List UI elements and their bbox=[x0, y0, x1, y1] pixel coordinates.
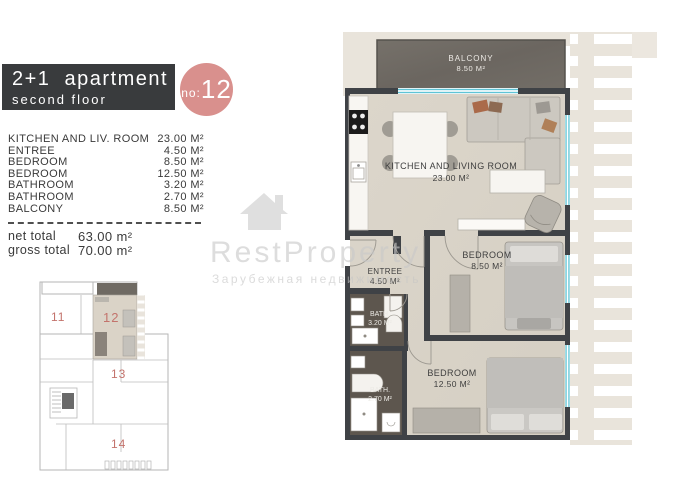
living-room-label: KITCHEN AND LIVING ROOM bbox=[385, 161, 517, 171]
table-separator bbox=[8, 222, 201, 224]
kitchen bbox=[349, 96, 368, 230]
apartment-title: 2+1 apartment bbox=[12, 68, 175, 91]
wardrobe bbox=[413, 408, 480, 433]
bedroom1-window[interactable] bbox=[565, 255, 570, 303]
double-bed bbox=[487, 358, 563, 433]
living-room-window[interactable] bbox=[565, 115, 570, 205]
pillow bbox=[488, 101, 502, 113]
toilet bbox=[382, 413, 400, 432]
balcony-area: 8.50 M² bbox=[457, 64, 486, 73]
living-room-area: 23.00 M² bbox=[433, 173, 470, 183]
sink-icon bbox=[351, 162, 366, 182]
unit-number: 12 bbox=[201, 74, 232, 105]
stairwell bbox=[50, 388, 77, 418]
mini-balcony bbox=[97, 283, 137, 295]
area-row: KITCHEN AND LIV. ROOM23.00 M² bbox=[8, 134, 204, 146]
bedroom2-area: 12.50 M² bbox=[434, 379, 471, 389]
wardrobe bbox=[450, 275, 470, 332]
unit-13-number: 13 bbox=[111, 367, 126, 381]
unit-14-number: 14 bbox=[111, 437, 126, 451]
area-row: BALCONY8.50 M² bbox=[8, 204, 204, 216]
floor-plan: BALCONY 8.50 M² bbox=[340, 28, 660, 448]
coffee-table bbox=[490, 170, 545, 193]
balcony-label: BALCONY bbox=[448, 54, 493, 63]
bedroom2-window[interactable] bbox=[565, 345, 570, 407]
balcony: BALCONY 8.50 M² bbox=[377, 40, 565, 90]
bedroom1-area: 8.50 M² bbox=[471, 261, 503, 271]
entree-label: ENTREE bbox=[368, 267, 403, 276]
area-row: BATHROOM2.70 M² bbox=[8, 192, 204, 204]
cooktop-icon bbox=[349, 110, 368, 134]
bedroom2-label: BEDROOM bbox=[427, 368, 476, 378]
bath2-area: 2.70 M² bbox=[368, 396, 392, 403]
single-bed bbox=[505, 242, 563, 330]
entrance-opening[interactable] bbox=[345, 240, 350, 266]
house-icon bbox=[236, 188, 298, 232]
title-card: 2+1 apartment second floor bbox=[2, 64, 175, 110]
entree-area: 4.50 M² bbox=[370, 277, 400, 286]
unit-number-badge: no:12 bbox=[180, 63, 233, 116]
area-table: KITCHEN AND LIV. ROOM23.00 M² ENTREE4.50… bbox=[8, 134, 204, 257]
unit-12-number: 12 bbox=[103, 310, 119, 325]
page: 2+1 apartment second floor no:12 KITCHEN… bbox=[0, 0, 678, 480]
bath1-area: 3.20 M² bbox=[368, 320, 392, 327]
floor-subtitle: second floor bbox=[12, 92, 175, 107]
pillow bbox=[535, 101, 550, 114]
tv-console bbox=[458, 219, 525, 230]
bedroom1-label: BEDROOM bbox=[462, 250, 511, 260]
balcony-window[interactable] bbox=[398, 88, 518, 94]
unit-11-number: 11 bbox=[51, 310, 65, 324]
pergola-louvers bbox=[570, 32, 632, 445]
bath2-label: BATH. bbox=[370, 387, 390, 394]
gross-total-row: gross total70.00 m² bbox=[8, 244, 204, 258]
mini-louver bbox=[137, 295, 145, 359]
unit-number-prefix: no: bbox=[181, 86, 201, 100]
building-overview-plan: 11 12 13 14 bbox=[26, 274, 172, 480]
net-total-row: net total63.00 m² bbox=[8, 230, 204, 244]
bath1-label: BATH. bbox=[370, 311, 390, 318]
